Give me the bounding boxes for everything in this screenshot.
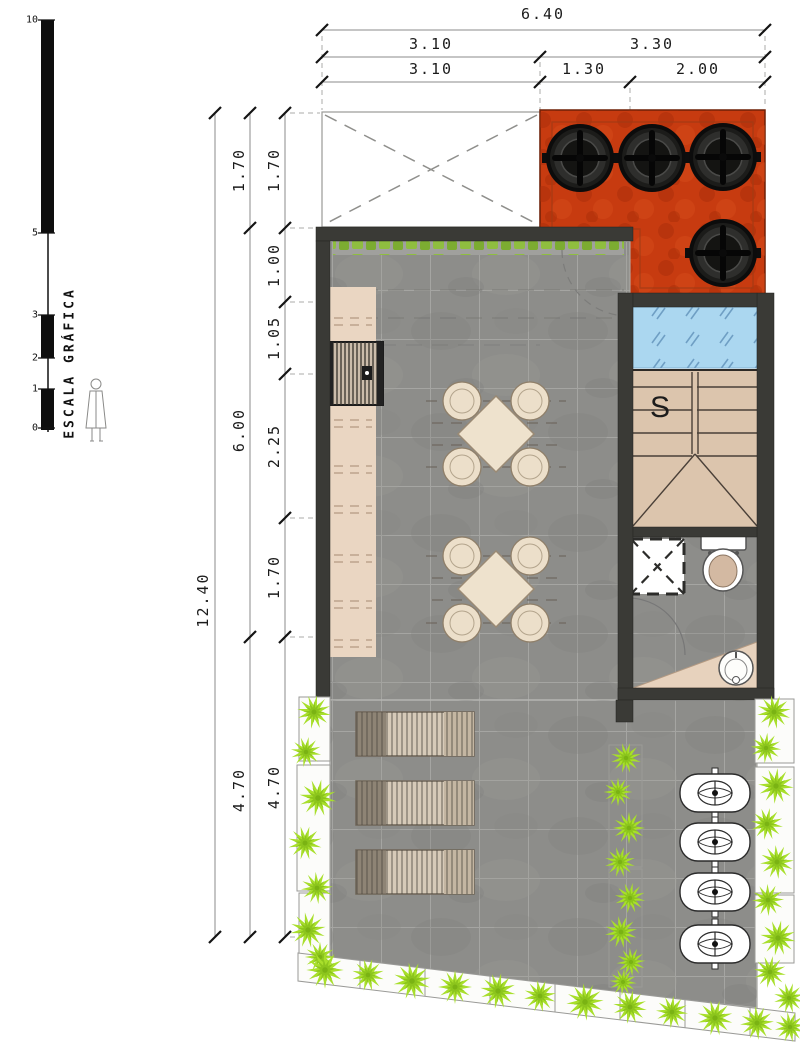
scale-tick-5: 5 bbox=[32, 228, 38, 239]
sun-lounger-1 bbox=[356, 712, 474, 756]
gas-tank-2 bbox=[680, 817, 750, 867]
dim-left-inner-3: 1.05 bbox=[265, 316, 283, 360]
toilet bbox=[701, 530, 746, 591]
skylight-pool bbox=[633, 307, 757, 368]
gas-tank-4 bbox=[680, 919, 750, 969]
scale-tick-2: 2 bbox=[32, 353, 38, 364]
scale-tick-0: 0 bbox=[32, 423, 38, 434]
bbq-grill bbox=[327, 342, 383, 405]
scale-tick-1: 1 bbox=[32, 384, 38, 395]
dim-left-inner-4: 2.25 bbox=[265, 424, 283, 468]
dim-left-inner-1: 1.70 bbox=[265, 148, 283, 192]
dim-top-row3-3: 2.00 bbox=[676, 60, 720, 78]
hedge-strip bbox=[333, 241, 624, 255]
sink bbox=[719, 651, 753, 685]
graphic-scale-bar bbox=[38, 20, 55, 432]
scale-bar-label: ESCALA GRÁFICA bbox=[63, 287, 78, 439]
gas-tank-3 bbox=[680, 867, 750, 917]
sun-lounger-3 bbox=[356, 850, 474, 894]
dim-left-total: 12.40 bbox=[194, 572, 212, 627]
scale-tick-3: 3 bbox=[32, 310, 38, 321]
dim-left-inner-2: 1.00 bbox=[265, 243, 283, 287]
stair-direction-label: S bbox=[650, 391, 670, 425]
dim-top-total: 6.40 bbox=[521, 5, 565, 23]
plan-drawing bbox=[0, 0, 800, 1045]
dim-top-row2-left: 3.10 bbox=[409, 35, 453, 53]
bathroom bbox=[628, 530, 757, 688]
scale-tick-10: 10 bbox=[26, 15, 38, 26]
shower-duct bbox=[631, 539, 684, 594]
sun-lounger-2 bbox=[356, 781, 474, 825]
dim-left-middle-1: 1.70 bbox=[230, 148, 248, 192]
dim-top-row3-2: 1.30 bbox=[562, 60, 606, 78]
gas-tank-1 bbox=[680, 768, 750, 818]
dim-top-row2-right: 3.30 bbox=[630, 35, 674, 53]
dim-left-inner-6: 4.70 bbox=[265, 765, 283, 809]
dim-left-middle-3: 4.70 bbox=[230, 768, 248, 812]
dim-top-row3-1: 3.10 bbox=[409, 60, 453, 78]
scale-human-figure bbox=[86, 379, 106, 441]
void-open-to-below bbox=[322, 112, 540, 227]
floor-plan-canvas: 6.40 3.10 3.30 3.10 1.30 2.00 12.40 1.70… bbox=[0, 0, 800, 1045]
dim-left-middle-2: 6.00 bbox=[230, 408, 248, 452]
dim-left-inner-5: 1.70 bbox=[265, 555, 283, 599]
